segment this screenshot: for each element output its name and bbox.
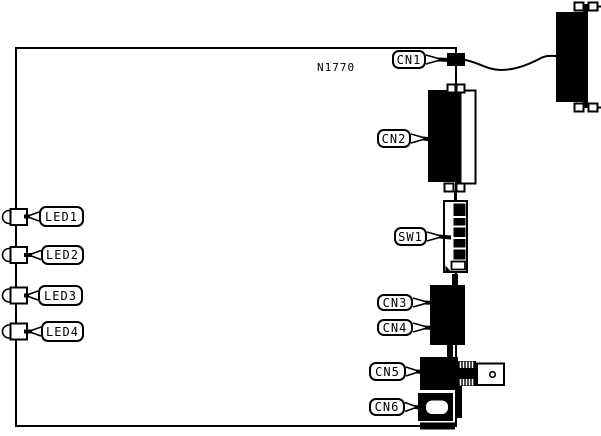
callout-cn3: CN3 [377, 294, 413, 311]
callout-led4: LED4 [41, 321, 84, 342]
cn5-body [420, 357, 458, 390]
sw1-bottom-pin [452, 274, 458, 285]
cn2-connector-icon [428, 85, 476, 202]
sw1-segment [454, 239, 466, 248]
cn2-top-screw-icon [457, 85, 465, 93]
cn6-opening [426, 401, 448, 415]
cn3-cn4-connector-icon [430, 285, 465, 357]
led1-indicator-icon [3, 209, 28, 225]
sw1-segment [454, 250, 466, 260]
cn3-cn4-body [430, 285, 465, 345]
cn2-top-screw-icon [448, 85, 456, 93]
db25-bottom-screw-icon [589, 104, 598, 112]
callout-led1: LED1 [39, 206, 84, 227]
db25-connector-icon [556, 3, 601, 112]
board-artwork-icon [0, 0, 601, 436]
callout-led2: LED2 [41, 245, 84, 265]
callout-led3: LED3 [38, 285, 83, 306]
callout-cn5: CN5 [369, 362, 406, 381]
sw1-segment [454, 204, 466, 217]
callout-cn6: CN6 [369, 398, 405, 416]
sw1-segment [454, 228, 466, 238]
callout-cn2: CN2 [377, 129, 411, 148]
cn2-bottom-screw-icon [445, 184, 454, 192]
cn5-bnc-connector-icon [420, 357, 504, 390]
led3-indicator-icon [3, 288, 28, 304]
cn5-center-pin [490, 372, 496, 378]
cn2-body [428, 90, 457, 182]
callout-cn1: CN1 [392, 50, 426, 69]
db25-body [556, 12, 584, 102]
db25-bottom-screw-icon [575, 104, 584, 112]
db25-top-screw-icon [589, 3, 598, 11]
sw1-dip-switch-icon [444, 201, 467, 285]
part-number-label: N1770 [317, 61, 355, 74]
cn2-bottom-screw-icon [457, 184, 465, 192]
db25-top-screw-icon [575, 3, 584, 11]
led2-indicator-icon [3, 247, 28, 263]
cn3-cn4-pin [447, 345, 453, 357]
callout-sw1: SW1 [394, 227, 427, 246]
cn2-backplate [461, 91, 476, 184]
led4-indicator-icon [3, 324, 28, 340]
sw1-segment [454, 218, 466, 226]
sw1-white-block [452, 262, 466, 270]
cn6-edge-bar [456, 386, 462, 418]
callout-pointers [24, 55, 451, 412]
callout-cn4: CN4 [377, 319, 413, 336]
circuit-board-diagram: N1770 CN1 CN2 SW1 CN3 CN4 CN5 CN6 LED1 L… [0, 0, 601, 436]
cable-wire-icon [465, 56, 556, 70]
cn6-bottom-bar [420, 423, 455, 430]
